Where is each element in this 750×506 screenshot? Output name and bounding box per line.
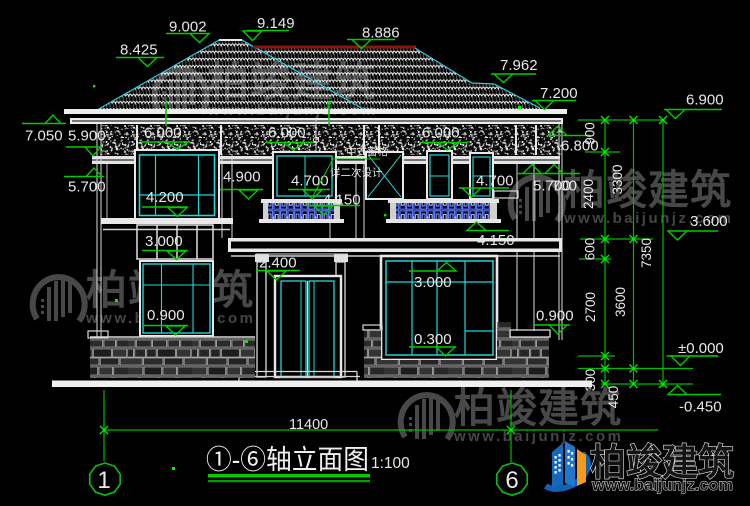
svg-text:6.000: 6.000 (422, 125, 460, 142)
svg-text:3.000: 3.000 (414, 274, 452, 291)
svg-text:9.149: 9.149 (257, 15, 295, 32)
svg-text:6: 6 (505, 467, 518, 494)
svg-text:www.baijunjz.com: www.baijunjz.com (591, 477, 733, 494)
svg-text:4.150: 4.150 (477, 232, 515, 249)
svg-text:11400: 11400 (289, 417, 328, 433)
svg-text:3600: 3600 (613, 287, 628, 317)
svg-text:0.300: 0.300 (414, 331, 452, 348)
svg-text:4.700: 4.700 (476, 173, 514, 190)
svg-text:0.900: 0.900 (536, 308, 574, 325)
svg-text:300: 300 (583, 369, 598, 392)
svg-text:8.425: 8.425 (120, 42, 158, 59)
svg-text:700: 700 (552, 178, 577, 195)
svg-text:6.900: 6.900 (686, 92, 724, 109)
svg-text:4.200: 4.200 (146, 189, 184, 206)
svg-text:2700: 2700 (583, 292, 598, 322)
svg-text:7.050: 7.050 (25, 128, 63, 145)
svg-text:6.000: 6.000 (144, 125, 182, 142)
svg-text:1: 1 (97, 467, 110, 494)
svg-text:4.900: 4.900 (223, 169, 261, 186)
svg-text:2400: 2400 (581, 179, 596, 209)
svg-text:7350: 7350 (639, 238, 654, 268)
svg-text:0.900: 0.900 (147, 307, 185, 324)
svg-text:6.000: 6.000 (268, 125, 306, 142)
svg-text:450: 450 (606, 386, 621, 409)
svg-text:7.200: 7.200 (540, 85, 578, 102)
svg-text:8.886: 8.886 (362, 25, 400, 42)
svg-text:-0.450: -0.450 (679, 399, 722, 416)
svg-text:详二次设计: 详二次设计 (330, 166, 383, 179)
svg-text:3300: 3300 (610, 164, 625, 194)
svg-text:5.700: 5.700 (68, 179, 106, 196)
svg-text:9.002: 9.002 (169, 19, 207, 36)
svg-text:2.400: 2.400 (259, 255, 297, 272)
svg-text:①-⑥轴立面图: ①-⑥轴立面图 (206, 445, 369, 475)
svg-text:中式窗格: 中式窗格 (346, 145, 388, 158)
svg-text:4.700: 4.700 (291, 173, 329, 190)
svg-text:1:100: 1:100 (371, 455, 410, 472)
svg-text:3.600: 3.600 (690, 213, 728, 230)
svg-text:3.000: 3.000 (145, 233, 183, 250)
svg-text:5.900: 5.900 (68, 128, 106, 145)
svg-text:900: 900 (583, 122, 598, 145)
svg-text:600: 600 (583, 238, 598, 261)
svg-text:7.962: 7.962 (500, 57, 538, 74)
svg-text:±0.000: ±0.000 (678, 340, 724, 357)
